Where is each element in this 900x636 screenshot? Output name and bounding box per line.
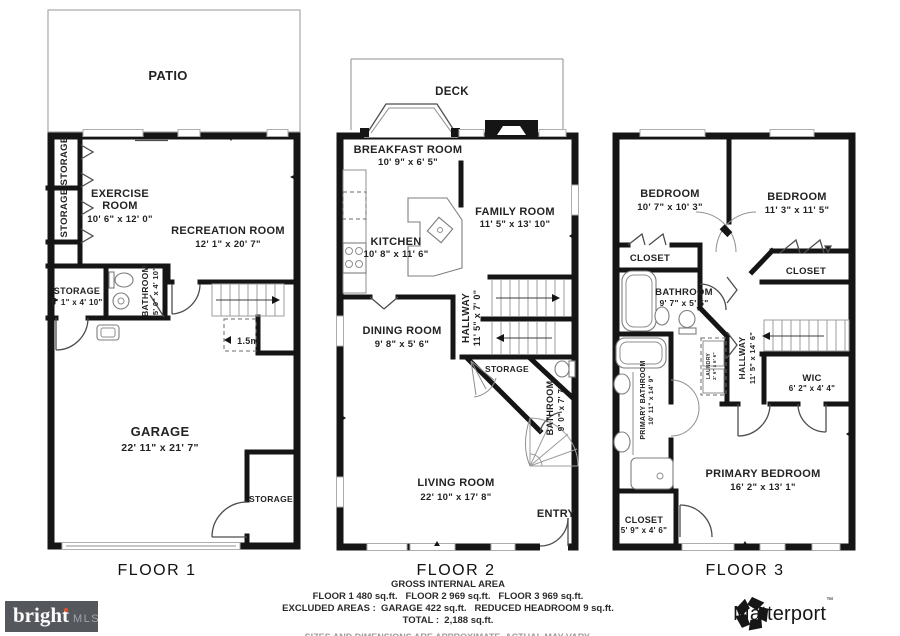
toilet-icon — [109, 272, 114, 288]
primary-bathroom-dims: 10' 11" x 14' 9" — [648, 375, 655, 425]
sink-icon — [113, 293, 129, 309]
floor2-plan: DECK — [337, 59, 579, 579]
patio-label: PATIO — [148, 68, 187, 83]
fridge-icon — [343, 192, 366, 219]
storage-label: STORAGE — [59, 189, 70, 238]
bathroom-dims: 9' 7" x 5' 5" — [659, 298, 708, 308]
window — [491, 544, 515, 551]
primary-bathroom-fixtures — [614, 338, 699, 489]
floor1-doors — [56, 284, 247, 537]
dining-room-label: DINING ROOM — [362, 325, 441, 337]
matterport-pinwheel-icon — [733, 595, 771, 633]
storage-label: STORAGE — [485, 364, 529, 374]
window — [410, 544, 455, 551]
bay-opening — [364, 129, 458, 138]
hallway-door-arc — [172, 284, 200, 314]
matterport-logo: Matterport™ — [733, 595, 833, 633]
footer-disclaimer: SIZES AND DIMENSIONS ARE APPROXIMATE, AC… — [148, 632, 748, 636]
storage-label: STORAGE — [249, 494, 293, 504]
bright-mls-suffix: MLS — [73, 613, 100, 625]
bedroom-dims: 11' 3" x 11' 5" — [765, 205, 830, 216]
exercise-room-label: EXERCISE — [91, 188, 149, 200]
bathroom-label: BATHROOM — [545, 381, 555, 436]
family-room-dims: 11' 5" x 13' 10" — [480, 219, 551, 230]
garage-label: GARAGE — [131, 424, 190, 439]
bright-wordmark: bright — [13, 601, 69, 630]
storage-dims: 5' 1" x 4' 10" — [51, 298, 102, 307]
bright-mls-logo: bright MLS — [5, 601, 98, 632]
bedroom-label: BEDROOM — [767, 191, 827, 203]
recreation-room-label: RECREATION ROOM — [171, 225, 285, 237]
toilet-icon — [569, 361, 575, 377]
wic-label: WIC — [802, 373, 821, 384]
window — [812, 544, 840, 551]
bathroom-dims: 9' 0" x 7' 7" — [557, 385, 566, 431]
breakfast-room-label: BREAKFAST ROOM — [354, 144, 463, 156]
living-room-label: LIVING ROOM — [417, 477, 494, 489]
entry-label: ENTRY — [537, 508, 576, 520]
window — [682, 544, 734, 551]
exercise-room-dims: 10' 6" x 12' 0" — [87, 214, 153, 225]
window — [83, 130, 143, 137]
closet-label: CLOSET — [625, 515, 664, 525]
garage-dims: 22' 11" x 21' 7" — [121, 442, 199, 454]
window — [367, 544, 407, 551]
hallway-dims: 11' 5" x 14' 6" — [748, 332, 757, 384]
storage-label: STORAGE — [59, 137, 70, 186]
window — [572, 185, 579, 215]
kitchen-dims: 10' 8" x 11' 6" — [363, 249, 428, 260]
dimension-arrow — [290, 174, 296, 180]
stair-arrow-head — [272, 296, 280, 304]
footer-floor-areas: FLOOR 1 480 sq.ft. FLOOR 2 969 sq.ft. FL… — [148, 591, 748, 602]
floor1-title: FLOOR 1 — [118, 562, 197, 579]
bedroom-label: BEDROOM — [640, 188, 700, 200]
dining-room-dims: 9' 8" x 5' 6" — [375, 339, 429, 350]
toilet-icon — [679, 328, 696, 334]
closet-dims: 5' 9" x 4' 6" — [621, 526, 667, 535]
hallway-label: HALLWAY — [737, 337, 747, 380]
bright-dot-icon — [64, 608, 68, 612]
bedroom-dims: 10' 7" x 10' 3" — [637, 202, 703, 213]
bathroom-label: BATHROOM — [140, 265, 150, 317]
footer-heading: GROSS INTERNAL AREA — [148, 579, 748, 590]
kitchen-label: KITCHEN — [371, 236, 422, 248]
family-room-label: FAMILY ROOM — [475, 206, 555, 218]
breakfast-room-dims: 10' 9" x 6' 5" — [378, 157, 438, 168]
headroom-note: 1.5m — [237, 336, 259, 346]
shower-icon — [631, 458, 673, 489]
hallway-label: HALLWAY — [461, 293, 472, 343]
floor3-stairs — [762, 320, 849, 351]
toilet-icon — [555, 361, 569, 377]
exercise-room-label2: ROOM — [102, 200, 137, 212]
floor1-plan: PATIO 1.5m — [48, 10, 300, 579]
storage-door-arc — [56, 318, 88, 350]
bath-door-arc — [671, 380, 699, 408]
window — [539, 130, 566, 137]
floorplan-drawing: PATIO 1.5m — [0, 0, 900, 636]
area-summary: GROSS INTERNAL AREA FLOOR 1 480 sq.ft. F… — [148, 579, 748, 636]
closet-label: CLOSET — [786, 266, 826, 277]
bathroom-label: BATHROOM — [655, 287, 713, 298]
footer-total-area: TOTAL : 2,188 sq.ft. — [148, 615, 748, 626]
closet-label: CLOSET — [630, 253, 670, 264]
floor2-interior-walls — [340, 163, 575, 431]
window — [760, 544, 785, 551]
window — [640, 130, 705, 137]
trademark-mark: ™ — [826, 597, 833, 604]
storage-door-arc — [212, 502, 247, 537]
reduced-headroom-zone — [224, 319, 256, 351]
primary-bedroom-label: PRIMARY BEDROOM — [705, 468, 820, 480]
primary-bathroom-label: PRIMARY BATHROOM — [640, 360, 647, 439]
bathroom-dims: 5' 0" x 4' 10" — [151, 267, 160, 315]
bedroom-door-arcs — [696, 212, 756, 252]
floorplan-page: PATIO 1.5m — [0, 0, 900, 636]
storage-label: STORAGE — [54, 286, 100, 296]
entry-door — [540, 518, 568, 546]
footer-excluded-areas: EXCLUDED AREAS : GARAGE 422 sq.ft. REDUC… — [148, 603, 748, 614]
sink-icon — [655, 307, 669, 325]
window — [178, 130, 200, 137]
wic-dims: 6' 2" x 4' 4" — [789, 384, 835, 393]
window — [770, 130, 814, 137]
double-door-marker — [370, 297, 398, 309]
floor1-stairs: 1.5m — [212, 284, 284, 351]
recreation-room-dims: 12' 1" x 20' 7" — [195, 239, 261, 250]
floor1-interior-walls — [48, 136, 297, 546]
sink-icon — [614, 432, 630, 452]
hallway-dims: 11' 5" x 7' 0" — [472, 290, 482, 347]
window — [459, 130, 484, 137]
laundry-dims: 2' 6" x 6' 6" — [712, 352, 717, 380]
floor3-title: FLOOR 3 — [706, 562, 785, 579]
window — [267, 130, 288, 137]
window — [337, 316, 344, 346]
floor-vent-icon — [97, 325, 119, 340]
toilet-icon — [679, 311, 695, 328]
toilet-icon — [115, 273, 133, 287]
kitchen-fixtures — [343, 170, 462, 293]
floor3-plan: BEDROOM 10' 7" x 10' 3" BEDROOM 11' 3" x… — [614, 130, 852, 580]
primary-bedroom-dims: 16' 2" x 13' 1" — [730, 482, 796, 493]
living-room-dims: 22' 10" x 17' 8" — [420, 492, 491, 503]
dimension-arrow — [224, 336, 231, 344]
sink-icon — [614, 374, 630, 394]
window — [337, 477, 344, 507]
bath-door-arc — [671, 408, 699, 436]
counter — [343, 170, 366, 293]
deck-label: DECK — [435, 86, 469, 98]
floor2-title: FLOOR 2 — [417, 562, 496, 579]
entry-opening — [540, 544, 568, 551]
